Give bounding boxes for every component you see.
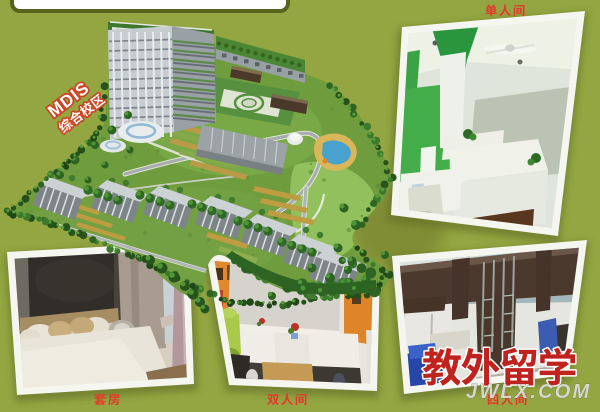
svg-text:JWLX.COM: JWLX.COM xyxy=(466,381,591,403)
